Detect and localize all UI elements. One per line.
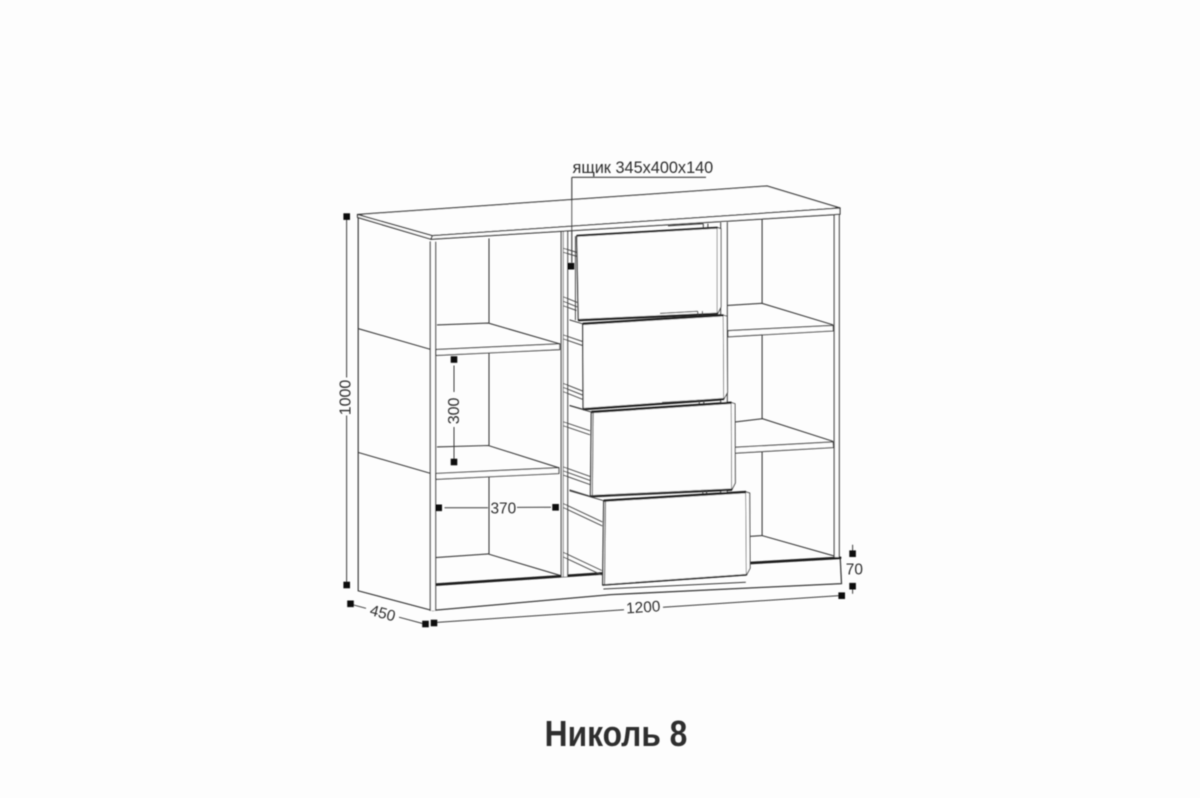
svg-text:70: 70 bbox=[846, 561, 863, 578]
svg-text:370: 370 bbox=[491, 500, 517, 517]
svg-text:1000: 1000 bbox=[338, 380, 355, 416]
svg-text:ящик 345x400x140: ящик 345x400x140 bbox=[573, 159, 714, 177]
svg-text:Николь 8: Николь 8 bbox=[545, 714, 688, 755]
svg-text:450: 450 bbox=[368, 602, 397, 625]
svg-text:300: 300 bbox=[446, 398, 463, 425]
svg-text:1200: 1200 bbox=[626, 598, 661, 617]
